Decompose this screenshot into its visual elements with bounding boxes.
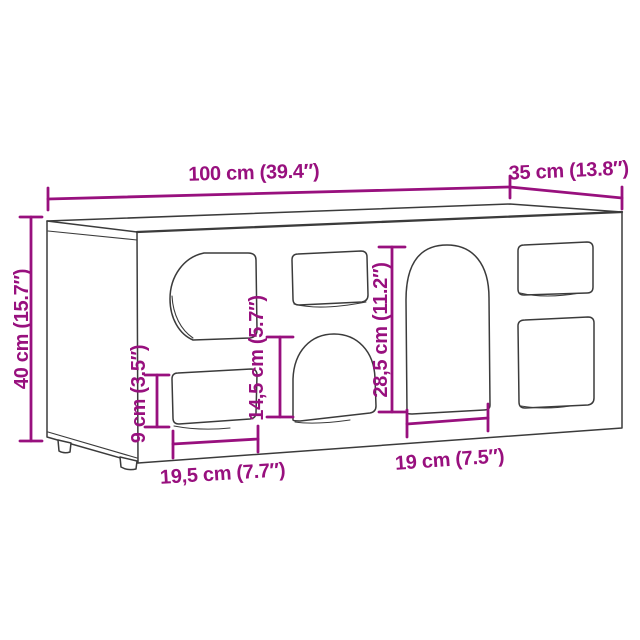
cabinet-foot-left: [58, 440, 71, 453]
left-cutout-height-label: 9 cm (3.5″): [128, 345, 150, 444]
arch-cutout-height-label: 28,5 cm (11.2″): [370, 262, 392, 397]
width-depth-dimension-line: [48, 187, 622, 199]
dome-cutout-height-label: 14,5 cm (5.7″): [246, 295, 268, 420]
dimension-diagram-svg: 100 cm (39.4″) 35 cm (13.8″) 40 cm (15.7…: [0, 0, 640, 640]
left-cutout-width-label: 19,5 cm (7.7″): [159, 459, 286, 489]
arch-cutout-width-label: 19 cm (7.5″): [394, 445, 505, 475]
height-dimension-label: 40 cm (15.7″): [11, 269, 33, 389]
width-dimension-label: 100 cm (39.4″): [188, 160, 320, 185]
depth-dimension-label: 35 cm (13.8″): [508, 157, 629, 184]
product-dimension-image: 100 cm (39.4″) 35 cm (13.8″) 40 cm (15.7…: [0, 0, 640, 640]
